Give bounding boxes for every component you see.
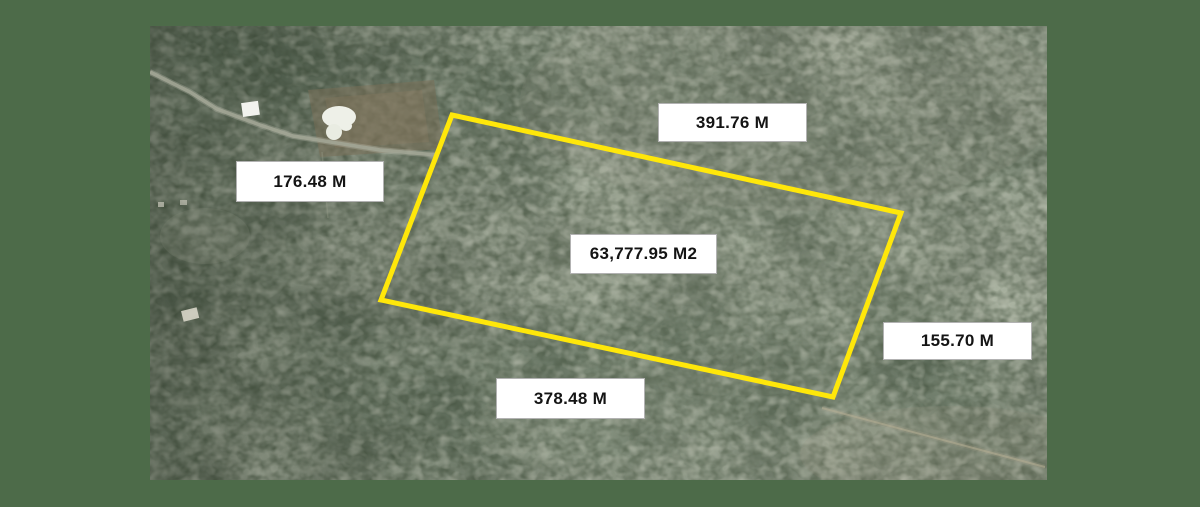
measurement-label-right: 155.70 M	[883, 322, 1032, 360]
measurement-label-top: 391.76 M	[658, 103, 807, 142]
pool-feature-lobe	[326, 124, 342, 140]
structure-left-edge-2	[180, 200, 187, 205]
parcel-map-canvas: 391.76 M 176.48 M 63,777.95 M2 155.70 M …	[0, 0, 1200, 507]
structure-left-edge-1	[158, 202, 164, 207]
measurement-label-left: 176.48 M	[236, 161, 384, 202]
measurement-label-bottom: 378.48 M	[496, 378, 645, 419]
grey-tint-mid	[530, 156, 950, 396]
area-label: 63,777.95 M2	[570, 234, 717, 274]
pool-feature-lobe2	[340, 121, 352, 131]
building-feature	[241, 101, 260, 117]
clearing-left-mid	[160, 208, 250, 264]
